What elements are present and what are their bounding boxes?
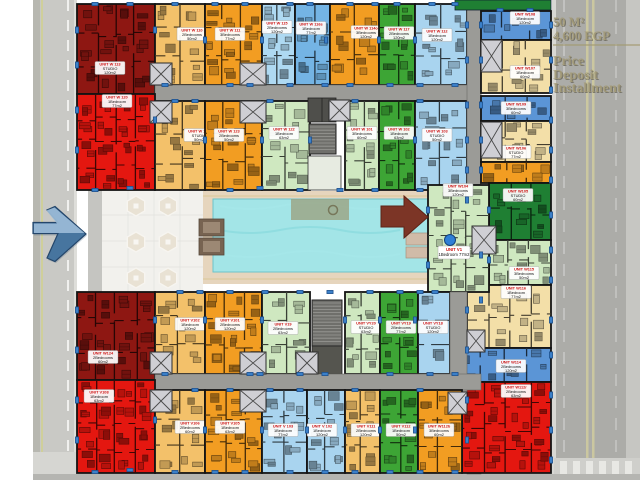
svg-text:Installment: Installment: [553, 81, 622, 96]
svg-text:60m2: 60m2: [357, 135, 367, 140]
svg-text:50m2: 50m2: [519, 275, 529, 280]
svg-text:60m2: 60m2: [511, 110, 521, 115]
svg-text:77m2: 77m2: [306, 30, 316, 35]
svg-text:120m2: 120m2: [431, 37, 443, 42]
svg-text:120m2: 120m2: [427, 329, 439, 334]
svg-text:63m2: 63m2: [361, 329, 371, 334]
svg-text:63m2: 63m2: [511, 393, 521, 398]
svg-text:50m2: 50m2: [396, 432, 406, 437]
svg-text:50m2: 50m2: [187, 36, 197, 41]
svg-text:63m2: 63m2: [394, 135, 404, 140]
svg-text:60m2: 60m2: [434, 432, 444, 437]
svg-text:120m2: 120m2: [316, 432, 328, 437]
svg-text:1Bedroom 77m2: 1Bedroom 77m2: [439, 252, 471, 257]
svg-text:63m2: 63m2: [225, 429, 235, 434]
svg-text:63m2: 63m2: [278, 330, 288, 335]
svg-text:77m2: 77m2: [225, 36, 235, 41]
svg-text:50m2: 50m2: [194, 137, 204, 142]
svg-text:120m2: 120m2: [519, 20, 531, 25]
svg-text:77m2: 77m2: [511, 154, 521, 159]
svg-text:50m2: 50m2: [224, 137, 234, 142]
svg-text:120m2: 120m2: [505, 368, 517, 373]
svg-text:120m2: 120m2: [360, 34, 372, 39]
svg-text:50 M²: 50 M²: [553, 15, 584, 29]
svg-text:120m2: 120m2: [271, 29, 283, 34]
svg-text:77m2: 77m2: [511, 294, 521, 299]
svg-text:63m2: 63m2: [279, 135, 289, 140]
svg-text:120m2: 120m2: [360, 432, 372, 437]
svg-text:60m2: 60m2: [185, 429, 195, 434]
svg-text:120m2: 120m2: [104, 70, 116, 75]
svg-text:120m2: 120m2: [184, 326, 196, 331]
svg-text:120m2: 120m2: [393, 35, 405, 40]
svg-text:63m2: 63m2: [94, 398, 104, 403]
svg-text:120m2: 120m2: [224, 326, 236, 331]
svg-text:77m2: 77m2: [396, 329, 406, 334]
svg-text:Price: Price: [553, 54, 584, 69]
svg-text:60m2: 60m2: [98, 359, 108, 364]
svg-text:4,600 EGP: 4,600 EGP: [553, 29, 610, 43]
svg-text:77m2: 77m2: [112, 103, 122, 108]
svg-text:50m2: 50m2: [432, 137, 442, 142]
svg-text:77m2: 77m2: [278, 432, 288, 437]
svg-text:60m2: 60m2: [520, 74, 530, 79]
svg-text:120m2: 120m2: [452, 192, 464, 197]
svg-text:60m2: 60m2: [513, 197, 523, 202]
